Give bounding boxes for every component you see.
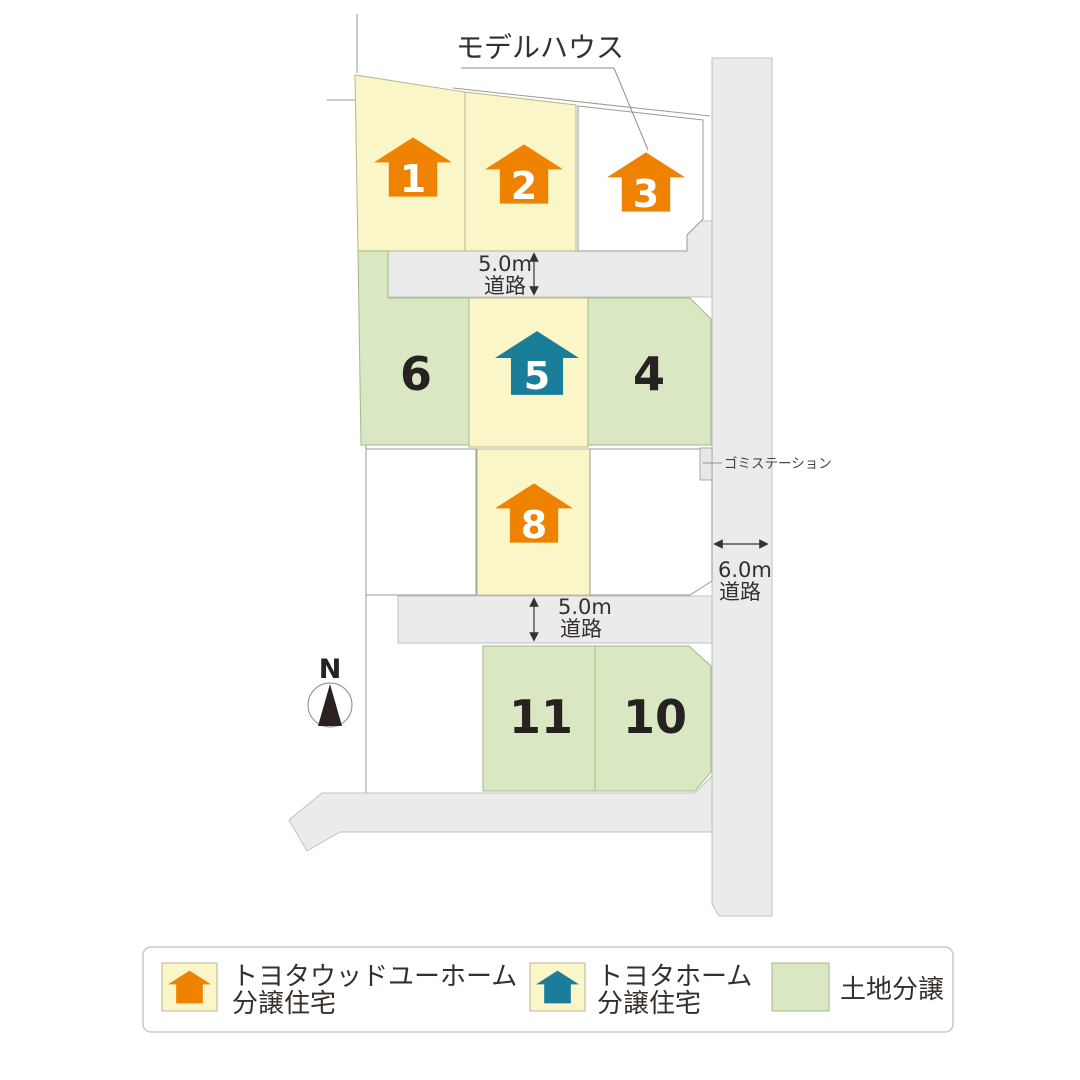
road-bottom-width-label: 5.0m	[558, 595, 612, 619]
lot-white-left-of-8	[366, 449, 476, 595]
legend-swatch-land	[772, 963, 829, 1011]
lot-map-svg: 6 4 11 10 1 2 3 5 8 モデルハウス 5.0m 道路 5.0m …	[0, 0, 1080, 1080]
road-right-vertical	[712, 58, 772, 916]
lot-11-number: 11	[509, 690, 573, 744]
lot-6-number: 6	[400, 347, 432, 401]
model-house-label: モデルハウス	[456, 31, 624, 64]
road-middle-horizontal	[398, 596, 712, 643]
legend-label-land: 土地分譲	[840, 975, 944, 1005]
lot-map-page: 6 4 11 10 1 2 3 5 8 モデルハウス 5.0m 道路 5.0m …	[0, 0, 1080, 1080]
road-bottom-type-label: 道路	[560, 617, 602, 641]
legend-label-wood-you-home-line2: 分譲住宅	[232, 989, 336, 1019]
house-number-lot-2: 2	[511, 164, 537, 208]
road-right-width-label: 6.0m	[718, 558, 772, 582]
house-number-lot-3: 3	[633, 172, 659, 216]
legend-label-wood-you-home-line1: トヨタウッドユーホーム	[232, 962, 517, 992]
legend: トヨタウッドユーホーム 分譲住宅 トヨタホーム 分譲住宅 土地分譲	[143, 947, 953, 1032]
legend-label-toyota-home-line2: 分譲住宅	[597, 989, 701, 1019]
house-number-lot-5: 5	[524, 354, 550, 398]
garbage-station-label: ゴミステーション	[724, 455, 832, 472]
road-top-width-label: 5.0m	[478, 252, 532, 276]
road-right-type-label: 道路	[719, 580, 761, 604]
lot-white-right-of-8	[590, 449, 712, 595]
lot-10-number: 10	[623, 690, 687, 744]
road-top-type-label: 道路	[484, 274, 526, 298]
house-number-lot-8: 8	[521, 503, 547, 547]
lot-4-number: 4	[633, 347, 665, 401]
legend-label-toyota-home-line1: トヨタホーム	[597, 962, 752, 992]
compass: N	[308, 654, 352, 727]
compass-north-label: N	[319, 654, 342, 685]
garbage-station-box	[700, 448, 712, 480]
house-number-lot-1: 1	[400, 157, 426, 201]
